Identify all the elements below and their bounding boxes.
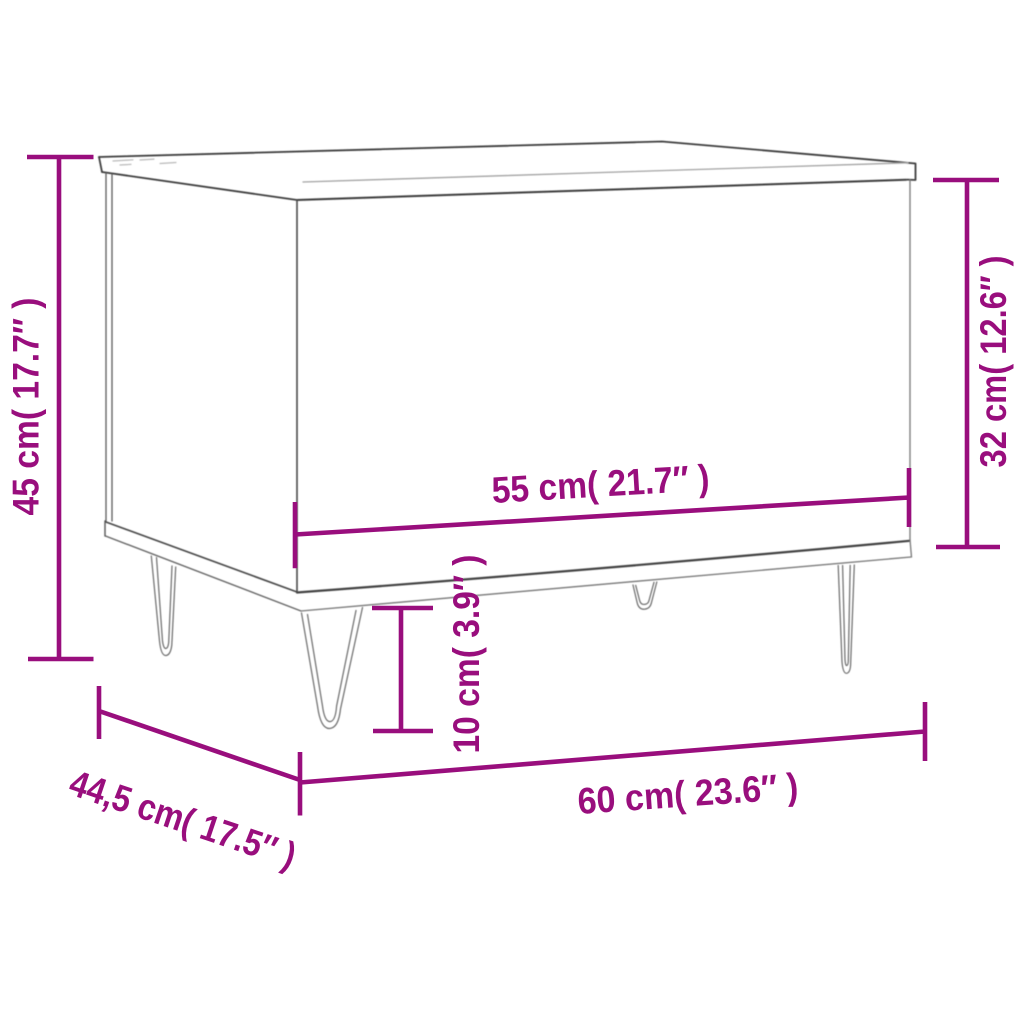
svg-text:10 cm( 3.9″ ): 10 cm( 3.9″ ): [446, 555, 487, 754]
svg-text:32 cm( 12.6″ ): 32 cm( 12.6″ ): [973, 256, 1014, 468]
svg-text:45 cm( 17.7″ ): 45 cm( 17.7″ ): [6, 298, 47, 516]
